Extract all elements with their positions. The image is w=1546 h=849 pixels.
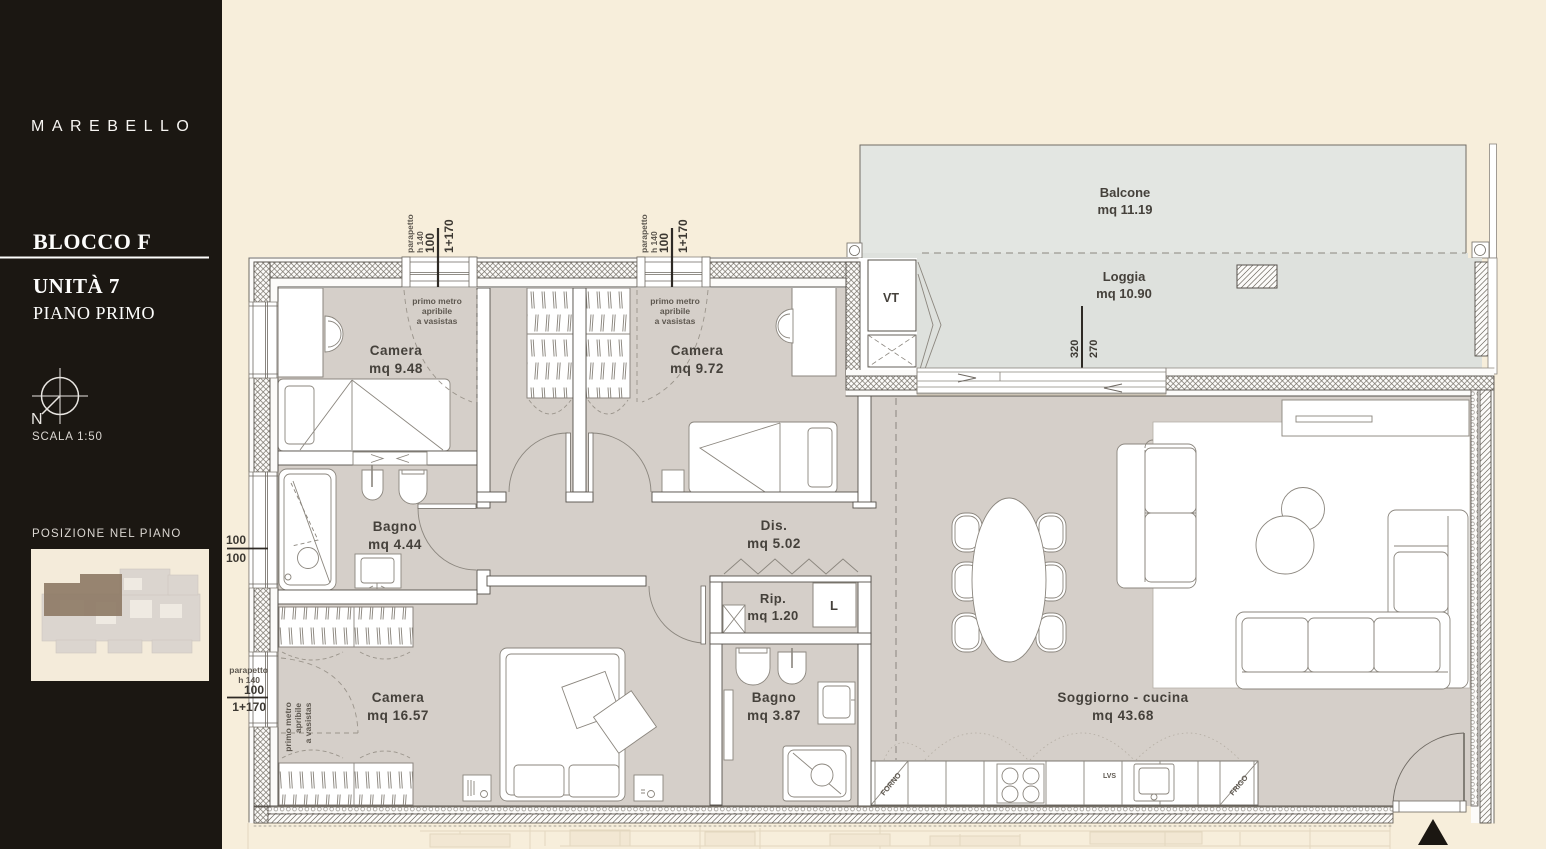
svg-text:1+170: 1+170 <box>676 219 690 253</box>
svg-text:parapetto: parapetto <box>405 214 415 253</box>
svg-text:mq 3.87: mq 3.87 <box>747 708 801 723</box>
svg-text:Balcone: Balcone <box>1100 185 1151 200</box>
svg-text:LVS: LVS <box>1103 773 1116 780</box>
svg-text:Dis.: Dis. <box>761 518 788 533</box>
svg-text:mq 9.72: mq 9.72 <box>670 361 724 376</box>
svg-text:parapetto: parapetto <box>639 214 649 253</box>
svg-text:270: 270 <box>1088 340 1100 358</box>
svg-text:mq 5.02: mq 5.02 <box>747 536 801 551</box>
svg-text:a vasistas: a vasistas <box>417 316 458 326</box>
svg-text:100: 100 <box>423 233 437 253</box>
svg-text:mq 11.19: mq 11.19 <box>1098 202 1153 217</box>
svg-text:L: L <box>830 598 838 613</box>
svg-text:a vasistas: a vasistas <box>655 316 696 326</box>
svg-text:mq 9.48: mq 9.48 <box>369 361 423 376</box>
svg-text:100: 100 <box>657 233 671 253</box>
svg-text:Rip.: Rip. <box>760 591 786 606</box>
svg-text:Bagno: Bagno <box>752 690 797 705</box>
svg-text:SCALA 1:50: SCALA 1:50 <box>32 431 103 443</box>
svg-text:POSIZIONE NEL PIANO: POSIZIONE NEL PIANO <box>32 528 182 540</box>
svg-text:apribile: apribile <box>422 306 453 316</box>
svg-text:Bagno: Bagno <box>373 519 418 534</box>
svg-text:N: N <box>31 411 43 428</box>
svg-text:100: 100 <box>226 533 246 547</box>
svg-text:PIANO PRIMO: PIANO PRIMO <box>33 303 155 323</box>
svg-text:mq 4.44: mq 4.44 <box>368 537 422 552</box>
svg-text:UNITÀ 7: UNITÀ 7 <box>33 274 120 298</box>
svg-text:parapetto: parapetto <box>229 665 268 675</box>
svg-text:BLOCCO F: BLOCCO F <box>33 229 151 254</box>
svg-text:mq 43.68: mq 43.68 <box>1092 708 1154 723</box>
svg-text:Soggiorno - cucina: Soggiorno - cucina <box>1057 690 1188 705</box>
svg-text:apribile: apribile <box>660 306 691 316</box>
svg-text:primo metro: primo metro <box>412 296 462 306</box>
svg-text:mq 16.57: mq 16.57 <box>367 708 429 723</box>
svg-text:a vasistas: a vasistas <box>303 702 313 743</box>
svg-text:MAREBELLO: MAREBELLO <box>31 118 196 135</box>
svg-text:1+170: 1+170 <box>232 700 266 714</box>
svg-text:100: 100 <box>226 551 246 565</box>
svg-text:primo metro: primo metro <box>283 702 293 752</box>
svg-text:100: 100 <box>244 683 264 697</box>
svg-text:Camera: Camera <box>671 343 724 358</box>
svg-text:Loggia: Loggia <box>1103 269 1146 284</box>
svg-text:mq 1.20: mq 1.20 <box>747 608 798 623</box>
svg-text:Camera: Camera <box>372 690 425 705</box>
svg-text:Camera: Camera <box>370 343 423 358</box>
svg-text:apribile: apribile <box>293 703 303 734</box>
svg-text:mq 10.90: mq 10.90 <box>1096 286 1152 301</box>
svg-text:320: 320 <box>1069 340 1081 358</box>
svg-text:primo metro: primo metro <box>650 296 700 306</box>
svg-text:1+170: 1+170 <box>442 219 456 253</box>
svg-text:VT: VT <box>883 291 899 305</box>
